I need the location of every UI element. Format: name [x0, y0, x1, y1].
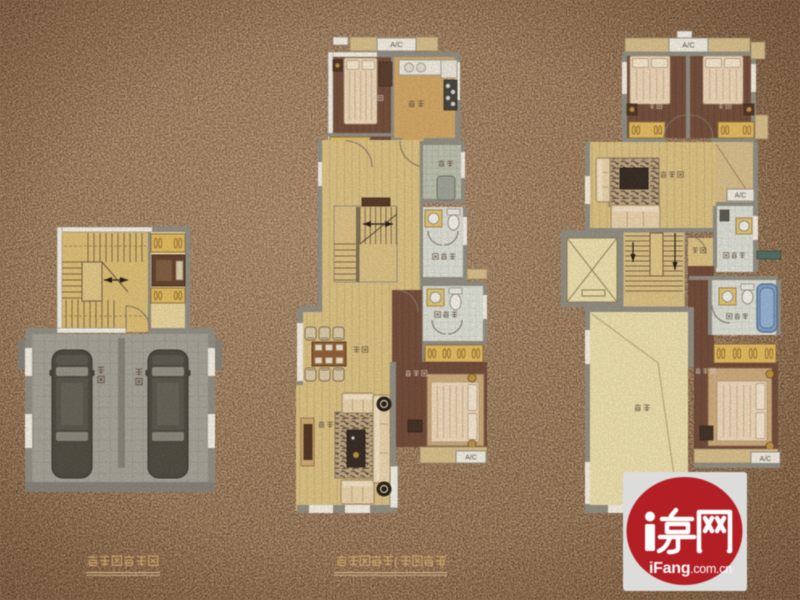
svg-text:): ) — [441, 554, 445, 569]
svg-text:iFang.com.cn: iFang.com.cn — [649, 560, 732, 577]
svg-text:(: ( — [394, 554, 399, 569]
